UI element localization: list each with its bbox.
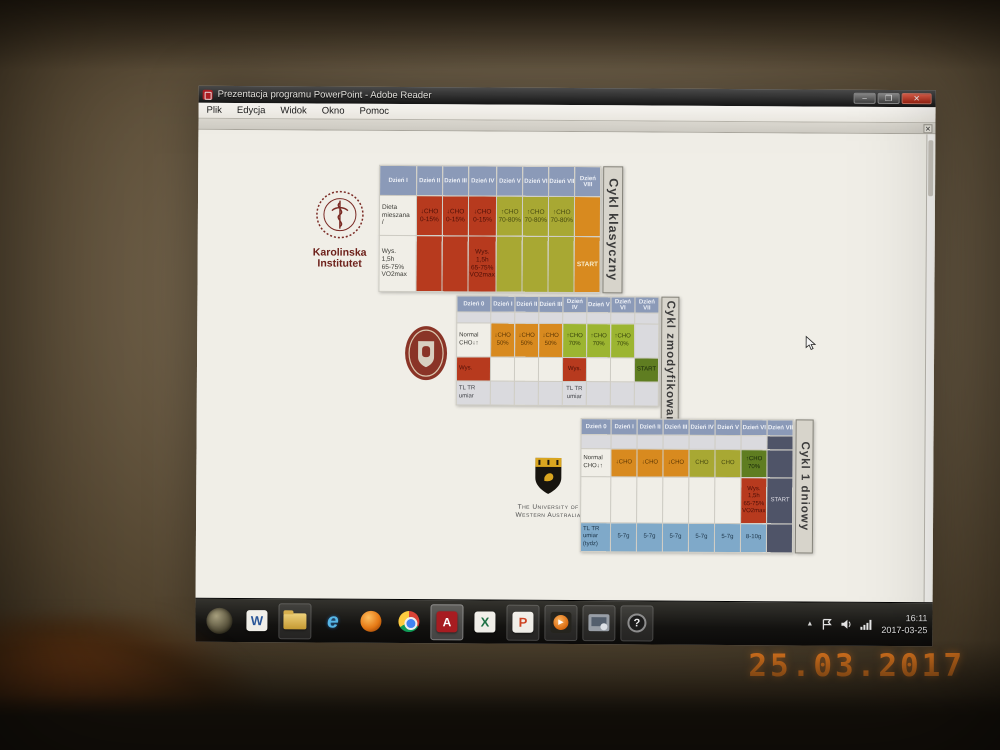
table-cell	[611, 477, 637, 523]
table-header-cell: Dzień V	[587, 297, 611, 313]
taskbar-media-player-button[interactable]: ▶	[544, 604, 577, 640]
table-cell: START	[634, 358, 658, 382]
table-cell	[741, 436, 767, 450]
menu-item-pomoc[interactable]: Pomoc	[359, 106, 389, 117]
table-header-cell: Dzień I	[491, 296, 515, 312]
adobe-reader-icon: A	[436, 611, 457, 632]
table-cell: ↑CHO 70-80%	[549, 196, 575, 236]
table-header-cell: Dzień VII	[549, 166, 575, 196]
table-header-cell: Dzień 0	[581, 419, 611, 435]
vertical-scrollbar[interactable]	[924, 134, 935, 602]
table-cell	[767, 450, 793, 478]
table-cell: ↓CHO	[637, 449, 663, 477]
table-cell	[496, 236, 522, 292]
uwa-shield-icon	[533, 456, 563, 496]
table-cell	[522, 236, 548, 292]
table-header-cell: Dzień III	[663, 419, 689, 435]
folder-icon	[283, 613, 306, 629]
table-header-cell: Dzień II	[637, 419, 663, 435]
table-cell	[663, 477, 689, 523]
table-cell: ↓CHO 50%	[539, 323, 563, 357]
room-wall-bottom	[0, 640, 1000, 750]
table-cell: START	[767, 478, 793, 524]
room-wall-top	[0, 0, 1000, 70]
table-cell: ↓CHO	[663, 449, 689, 477]
photo-of-projection: Prezentacja programu PowerPoint - Adobe …	[0, 0, 1000, 750]
table-header-cell: Dzień VI	[611, 297, 635, 313]
table-cell	[490, 381, 514, 405]
table-cell: ↑CHO 70-80%	[523, 196, 549, 236]
document-page: Karolinska Institutet Dzień IDzień IIDzi…	[196, 130, 936, 602]
table-header-cell: Dzień VII	[767, 420, 793, 436]
table-cell	[767, 436, 793, 450]
table-cell: ↓CHO	[611, 449, 637, 477]
table-cell	[637, 435, 663, 449]
table-cell	[581, 435, 611, 449]
help-icon: ?	[627, 613, 646, 632]
karolinska-caption: Karolinska Institutet	[294, 247, 386, 269]
pane-close-icon[interactable]: ✕	[923, 124, 932, 133]
window-title: Prezentacja programu PowerPoint - Adobe …	[218, 89, 849, 104]
table-cell	[586, 382, 610, 406]
table-cell	[610, 358, 634, 382]
table-cell: 5-7g	[714, 523, 740, 552]
table-cell: ↑CHO 70%	[587, 324, 611, 358]
taskbar-help-button[interactable]: ?	[620, 605, 653, 641]
media-player-icon: ▶	[550, 612, 571, 633]
table-header-cell: Dzień III	[539, 296, 563, 312]
table-header-cell: Dzień V	[497, 166, 523, 196]
table-header-cell: Dzień VIII	[575, 167, 601, 197]
taskbar-firefox-button[interactable]	[354, 603, 387, 639]
table-cell	[637, 477, 663, 523]
table-header-cell: Dzień IV	[689, 419, 715, 435]
volume-icon[interactable]	[840, 619, 852, 630]
chrome-icon	[398, 611, 419, 632]
scrollbar-thumb[interactable]	[928, 140, 933, 196]
protocol-table: Dzień 0Dzień IDzień IIDzień IIIDzień IVD…	[456, 295, 660, 406]
table-cell	[586, 358, 610, 382]
protocol-table: Dzień IDzień IIDzień IIIDzień IVDzień VD…	[378, 165, 601, 293]
table-cell: 5-7g	[688, 523, 714, 552]
table-cell	[689, 435, 715, 449]
mouse-cursor-icon	[805, 335, 816, 350]
table-cell: ↓CHO 50%	[491, 323, 515, 357]
table-cell: Wys. 1,5h 65-75% VO2max	[379, 235, 416, 291]
table-cell: Dieta mieszana /	[379, 195, 416, 235]
table-cell	[635, 324, 659, 358]
table-header-cell: Dzień II	[417, 166, 443, 196]
table-cell	[767, 524, 793, 553]
table-header-cell: Dzień VII	[635, 297, 659, 313]
table-cell: ↓CHO 0-15%	[442, 196, 468, 236]
table-cell	[538, 357, 562, 381]
table-cykl-1-dniowy: Dzień 0Dzień IDzień IIDzień IIIDzień IVD…	[580, 418, 814, 553]
table-header-cell: Dzień V	[715, 419, 741, 435]
table-cell: ↓CHO 50%	[515, 323, 539, 357]
table-cell	[663, 435, 689, 449]
taskbar-excel-button[interactable]: X	[468, 604, 501, 640]
table-header-cell: Dzień 0	[457, 296, 491, 312]
table-cell: 5-7g	[636, 523, 662, 552]
taskbar-chrome-button[interactable]	[392, 603, 425, 639]
table-cell: Wys.	[456, 357, 490, 381]
minimize-button[interactable]: –	[854, 93, 876, 104]
table-cykl-klasyczny: Dzień IDzień IIDzień IIIDzień IVDzień VD…	[378, 165, 623, 293]
taskbar-explorer-button[interactable]	[278, 603, 311, 639]
table-header-cell: Dzień I	[380, 165, 417, 195]
table-header-cell: Dzień VI	[741, 420, 767, 436]
table-cell	[457, 312, 491, 323]
network-signal-icon[interactable]	[860, 619, 871, 629]
table-cell: ↓CHO 0-15%	[416, 196, 442, 236]
table-cell	[587, 313, 611, 324]
table-cell	[515, 312, 539, 323]
table-cell	[635, 313, 659, 324]
table-cell: ↑CHO 70%	[611, 324, 635, 358]
table-cell: Normal CHO↓↑	[457, 323, 491, 357]
vertical-label-cykl-1-dniowy: Cykl 1 dniowy	[795, 419, 814, 553]
taskbar-adobe-reader-button[interactable]: A	[430, 604, 463, 640]
table-cell: 5-7g	[662, 523, 688, 552]
table-cell	[490, 357, 514, 381]
table-cell	[538, 381, 562, 405]
table-cell	[715, 477, 741, 523]
table-cell	[634, 382, 658, 406]
table-cell: TL TR umiar (tydz)	[580, 523, 610, 552]
table-cell: TL TR umiar	[456, 381, 490, 405]
table-cell	[715, 435, 741, 449]
table-header-cell: Dzień IV	[469, 166, 497, 196]
firefox-icon	[360, 611, 381, 632]
table-cell	[563, 312, 587, 323]
table-header-cell: Dzień IV	[563, 296, 587, 312]
table-cell: Normal CHO↓↑	[581, 449, 611, 477]
table-cell: Wys. 1,5h 65-75% VO2max	[468, 236, 497, 292]
table-cell: START	[574, 237, 600, 293]
table-cell	[539, 312, 563, 323]
menu-item-okno[interactable]: Okno	[322, 106, 345, 117]
table-cell: CHO	[689, 449, 715, 477]
table-cell: CHO	[715, 449, 741, 477]
protocol-table: Dzień 0Dzień IDzień IIDzień IIIDzień IVD…	[580, 418, 794, 553]
table-cell	[610, 382, 634, 406]
table-cell	[548, 236, 574, 292]
tray-expand-icon[interactable]: ▲	[806, 620, 813, 627]
table-cell: 5-7g	[610, 523, 636, 552]
presentation-display-icon	[588, 614, 609, 631]
action-center-flag-icon[interactable]	[821, 618, 832, 630]
projected-desktop: Prezentacja programu PowerPoint - Adobe …	[195, 86, 935, 646]
table-cell: ↑CHO 70-80%	[497, 196, 523, 236]
table-cell: 8-10g	[740, 524, 767, 553]
powerpoint-icon: P	[512, 612, 533, 633]
menu-item-widok[interactable]: Widok	[280, 105, 306, 116]
table-cell	[575, 197, 601, 237]
taskbar-display-button[interactable]	[582, 605, 615, 641]
clock-time: 16:11	[881, 613, 927, 625]
table-cell	[611, 313, 635, 324]
table-header-cell: Dzień III	[443, 166, 469, 196]
table-cell: ↓CHO 0-15%	[468, 196, 497, 236]
university-seal-logo	[403, 323, 449, 388]
table-cell	[514, 357, 538, 381]
table-header-cell: Dzień VI	[523, 166, 549, 196]
vertical-label-cykl-zmodyfikowany: Cykl zmodyfikowany	[661, 297, 680, 436]
taskbar-powerpoint-button[interactable]: P	[506, 604, 539, 640]
table-header-cell: Dzień II	[515, 296, 539, 312]
table-cell	[514, 381, 538, 405]
table-cell: Wys. 1,5h 65-75% VO2max	[741, 478, 768, 524]
table-cell	[611, 435, 637, 449]
clock-date: 2017-03-25	[881, 624, 927, 636]
maximize-button[interactable]: ❐	[878, 93, 900, 104]
table-cell	[442, 236, 468, 292]
table-cell: TL TR umiar	[562, 381, 586, 405]
menu-item-plik[interactable]: Plik	[207, 105, 222, 116]
internet-explorer-icon: e	[327, 611, 339, 632]
taskbar: W e A X P ▶ ? ▲	[195, 598, 932, 647]
adobe-reader-window-icon	[203, 89, 213, 99]
table-header-cell: Dzień I	[611, 419, 637, 435]
menu-item-edycja[interactable]: Edycja	[237, 105, 266, 116]
karolinska-seal-icon	[314, 188, 366, 240]
table-cell: ↑CHO 70%	[563, 323, 587, 357]
table-cell	[491, 312, 515, 323]
table-cykl-zmodyfikowany: Dzień 0Dzień IDzień IIDzień IIIDzień IVD…	[456, 295, 680, 435]
table-cell	[416, 236, 442, 292]
taskbar-ie-button[interactable]: e	[316, 603, 349, 639]
table-cell: Wys.	[562, 357, 586, 381]
taskbar-clock[interactable]: 16:11 2017-03-25	[879, 613, 927, 636]
oval-seal-icon	[403, 323, 449, 383]
karolinska-logo: Karolinska Institutet	[294, 188, 386, 269]
close-button[interactable]: ✕	[902, 93, 932, 104]
table-cell	[689, 477, 715, 523]
table-cell: ↑CHO 70%	[741, 450, 768, 478]
vertical-label-cykl-klasyczny: Cykl klasyczny	[603, 166, 624, 293]
table-cell	[581, 477, 611, 523]
excel-icon: X	[474, 611, 495, 632]
